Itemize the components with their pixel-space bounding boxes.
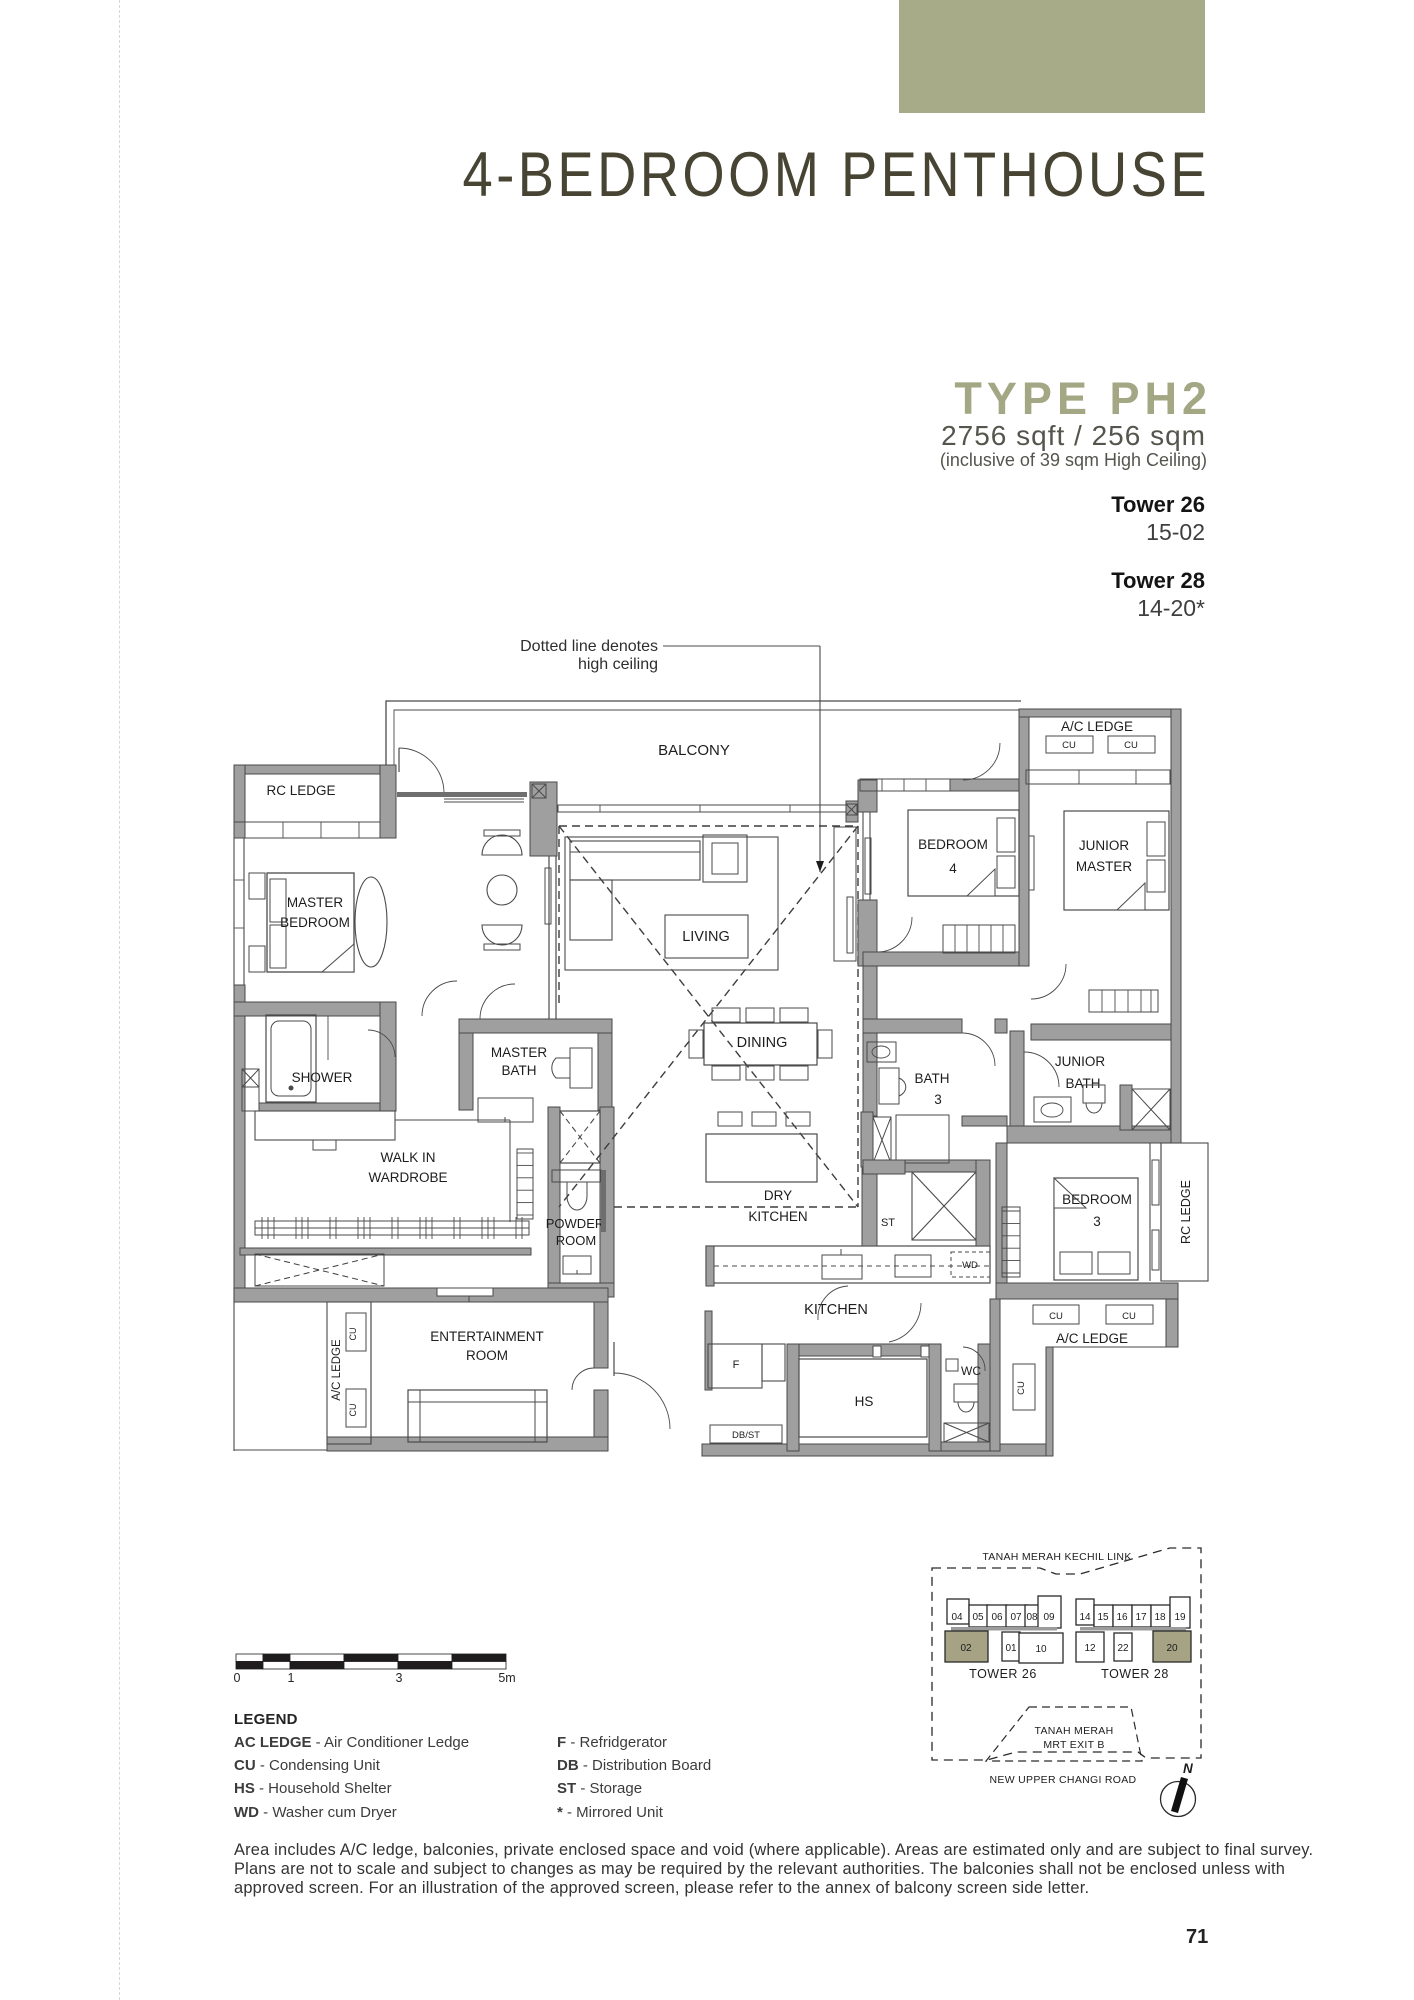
svg-text:BATH: BATH: [914, 1071, 949, 1086]
svg-text:19: 19: [1174, 1612, 1186, 1623]
svg-text:MASTER: MASTER: [1076, 859, 1133, 874]
svg-text:POWDER: POWDER: [546, 1216, 605, 1231]
svg-text:CU: CU: [1016, 1381, 1027, 1395]
svg-text:RC LEDGE: RC LEDGE: [1179, 1180, 1193, 1244]
svg-text:3: 3: [1093, 1214, 1101, 1229]
svg-text:DB/ST: DB/ST: [732, 1430, 760, 1441]
svg-text:TANAH MERAH KECHIL LINK: TANAH MERAH KECHIL LINK: [982, 1551, 1131, 1563]
svg-text:WD: WD: [962, 1260, 978, 1271]
svg-text:MASTER: MASTER: [287, 895, 344, 910]
svg-text:MASTER: MASTER: [491, 1045, 548, 1060]
svg-text:07: 07: [1010, 1612, 1022, 1623]
svg-text:4: 4: [949, 861, 957, 876]
svg-text:17: 17: [1135, 1612, 1147, 1623]
svg-text:ST: ST: [881, 1217, 895, 1229]
svg-text:01: 01: [1005, 1643, 1017, 1654]
svg-text:JUNIOR: JUNIOR: [1079, 838, 1130, 853]
svg-text:5m: 5m: [498, 1671, 515, 1685]
svg-text:TOWER 26: TOWER 26: [969, 1667, 1037, 1681]
svg-text:10: 10: [1035, 1644, 1047, 1655]
svg-text:1: 1: [288, 1671, 295, 1685]
svg-text:A/C LEDGE: A/C LEDGE: [331, 1339, 343, 1401]
svg-text:RC LEDGE: RC LEDGE: [266, 783, 335, 798]
svg-text:DINING: DINING: [737, 1035, 788, 1051]
svg-text:WC: WC: [961, 1364, 981, 1378]
svg-text:22: 22: [1117, 1643, 1129, 1654]
svg-text:BEDROOM: BEDROOM: [280, 915, 350, 930]
svg-text:ROOM: ROOM: [466, 1348, 508, 1363]
svg-text:BATH: BATH: [501, 1063, 536, 1078]
svg-text:F: F: [733, 1359, 740, 1371]
svg-text:20: 20: [1166, 1643, 1178, 1654]
svg-text:05: 05: [972, 1612, 984, 1623]
svg-text:CU: CU: [1124, 740, 1138, 751]
svg-text:KITCHEN: KITCHEN: [804, 1302, 868, 1318]
svg-text:BEDROOM: BEDROOM: [1062, 1192, 1132, 1207]
svg-text:A/C LEDGE: A/C LEDGE: [1061, 719, 1133, 734]
svg-text:TANAH MERAH: TANAH MERAH: [1035, 1725, 1114, 1737]
svg-text:BEDROOM: BEDROOM: [918, 837, 988, 852]
svg-text:DRY: DRY: [764, 1188, 792, 1203]
svg-text:CU: CU: [348, 1404, 358, 1417]
svg-text:15: 15: [1097, 1612, 1109, 1623]
svg-text:09: 09: [1043, 1612, 1055, 1623]
svg-text:16: 16: [1116, 1612, 1128, 1623]
svg-text:CU: CU: [1062, 740, 1076, 751]
svg-text:06: 06: [991, 1612, 1003, 1623]
svg-text:0: 0: [234, 1671, 241, 1685]
svg-text:HS: HS: [855, 1394, 874, 1409]
svg-text:18: 18: [1154, 1612, 1166, 1623]
svg-text:CU: CU: [1049, 1311, 1063, 1322]
svg-text:CU: CU: [1122, 1311, 1136, 1322]
svg-text:SHOWER: SHOWER: [292, 1070, 353, 1085]
svg-text:WALK IN: WALK IN: [380, 1150, 435, 1165]
svg-text:BALCONY: BALCONY: [658, 742, 730, 759]
svg-text:3: 3: [934, 1092, 942, 1107]
svg-text:02: 02: [960, 1643, 972, 1654]
svg-text:N: N: [1183, 1761, 1193, 1776]
svg-text:ENTERTAINMENT: ENTERTAINMENT: [430, 1329, 544, 1344]
svg-text:WARDROBE: WARDROBE: [368, 1170, 447, 1185]
svg-text:NEW UPPER CHANGI ROAD: NEW UPPER CHANGI ROAD: [990, 1774, 1137, 1786]
svg-text:A/C LEDGE: A/C LEDGE: [1056, 1331, 1128, 1346]
svg-text:LIVING: LIVING: [682, 929, 730, 945]
svg-text:CU: CU: [348, 1328, 358, 1341]
svg-text:3: 3: [396, 1671, 403, 1685]
svg-text:08: 08: [1026, 1612, 1038, 1623]
svg-text:MRT EXIT B: MRT EXIT B: [1043, 1739, 1104, 1751]
svg-text:JUNIOR: JUNIOR: [1055, 1054, 1106, 1069]
svg-text:KITCHEN: KITCHEN: [748, 1209, 807, 1224]
svg-text:14: 14: [1079, 1612, 1091, 1623]
svg-text:TOWER 28: TOWER 28: [1101, 1667, 1169, 1681]
svg-text:ROOM: ROOM: [556, 1233, 596, 1248]
svg-text:04: 04: [951, 1612, 963, 1623]
svg-text:12: 12: [1084, 1643, 1096, 1654]
